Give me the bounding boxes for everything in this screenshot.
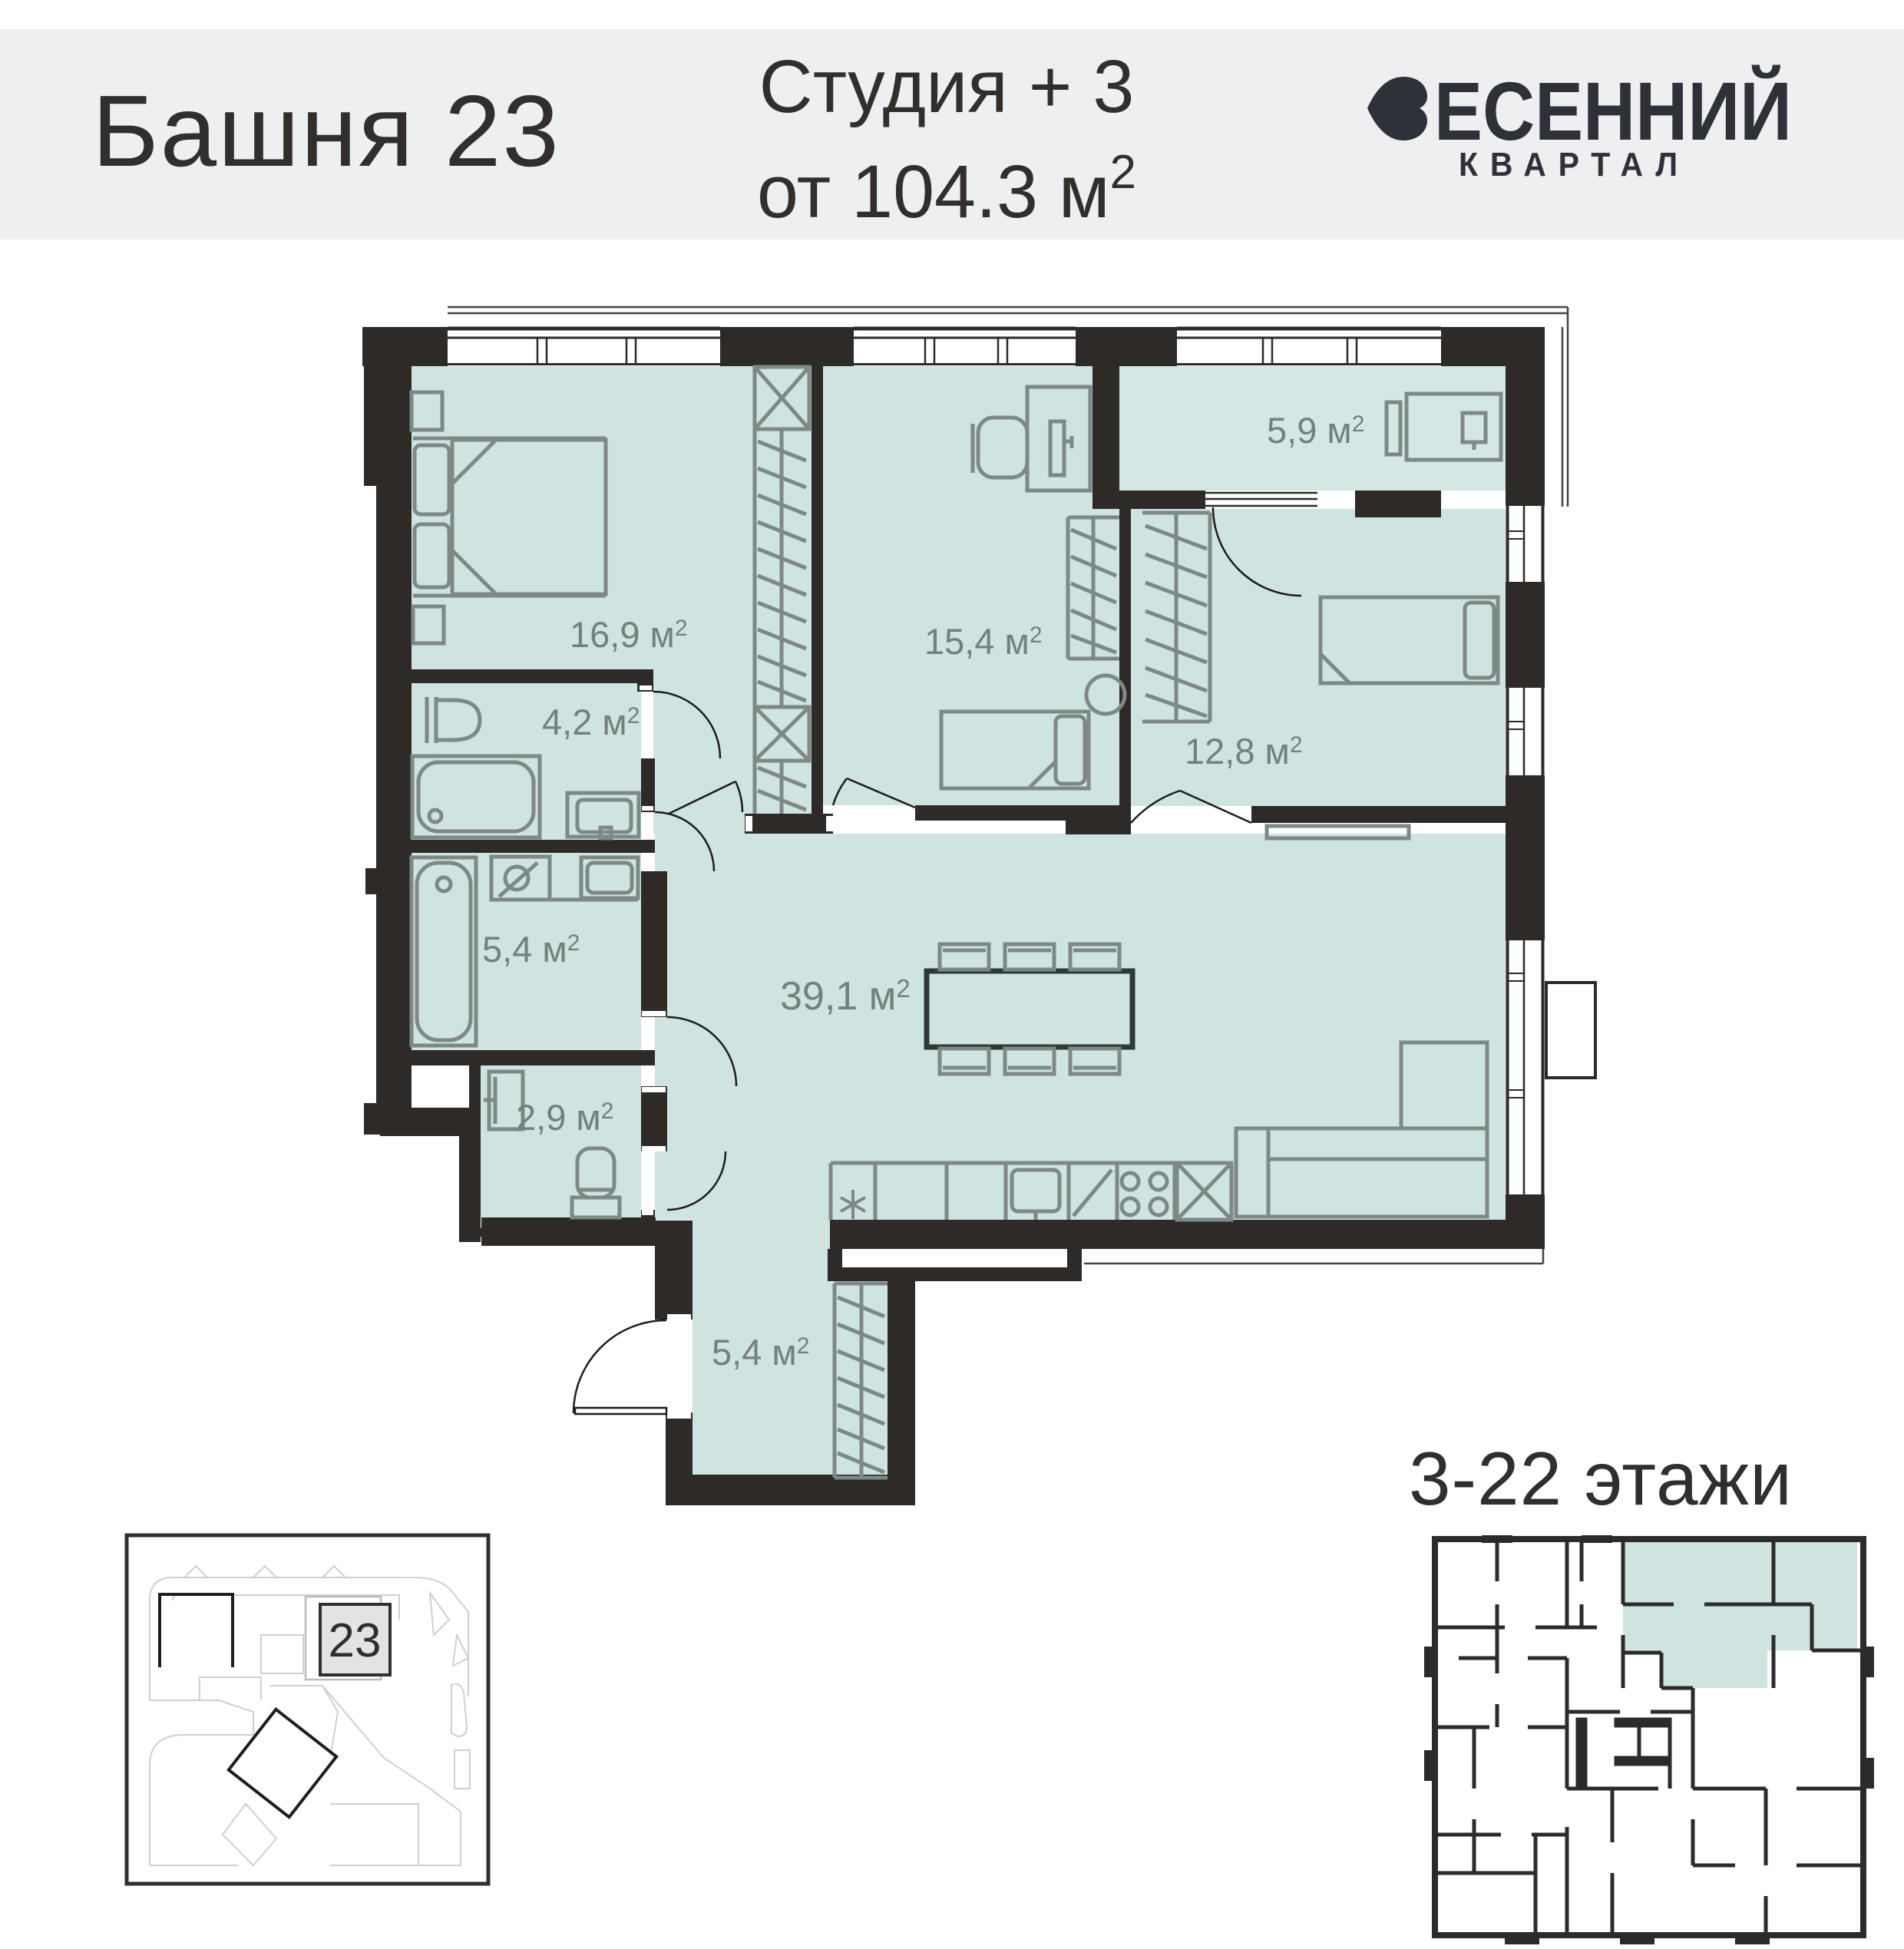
svg-text:от 104.3 м2: от 104.3 м2 bbox=[757, 146, 1136, 233]
svg-text:КВАРТАЛ: КВАРТАЛ bbox=[1459, 146, 1690, 183]
svg-text:16,9 м2: 16,9 м2 bbox=[570, 614, 688, 655]
svg-text:Башня 23: Башня 23 bbox=[92, 74, 560, 187]
svg-text:5,9 м2: 5,9 м2 bbox=[1267, 410, 1364, 451]
svg-text:4,2 м2: 4,2 м2 bbox=[542, 702, 640, 742]
svg-text:12,8 м2: 12,8 м2 bbox=[1185, 731, 1303, 771]
svg-text:2,9 м2: 2,9 м2 bbox=[516, 1097, 613, 1138]
svg-text:ЕСЕННИЙ: ЕСЕННИЙ bbox=[1434, 64, 1792, 157]
svg-text:39,1 м2: 39,1 м2 bbox=[780, 974, 911, 1019]
svg-text:5,4 м2: 5,4 м2 bbox=[712, 1332, 809, 1373]
svg-text:5,4 м2: 5,4 м2 bbox=[482, 929, 580, 970]
svg-text:3-22 этажи: 3-22 этажи bbox=[1409, 1436, 1793, 1521]
svg-text:15,4 м2: 15,4 м2 bbox=[924, 621, 1043, 662]
svg-text:23: 23 bbox=[329, 1614, 382, 1667]
svg-text:Студия + 3: Студия + 3 bbox=[759, 45, 1135, 128]
